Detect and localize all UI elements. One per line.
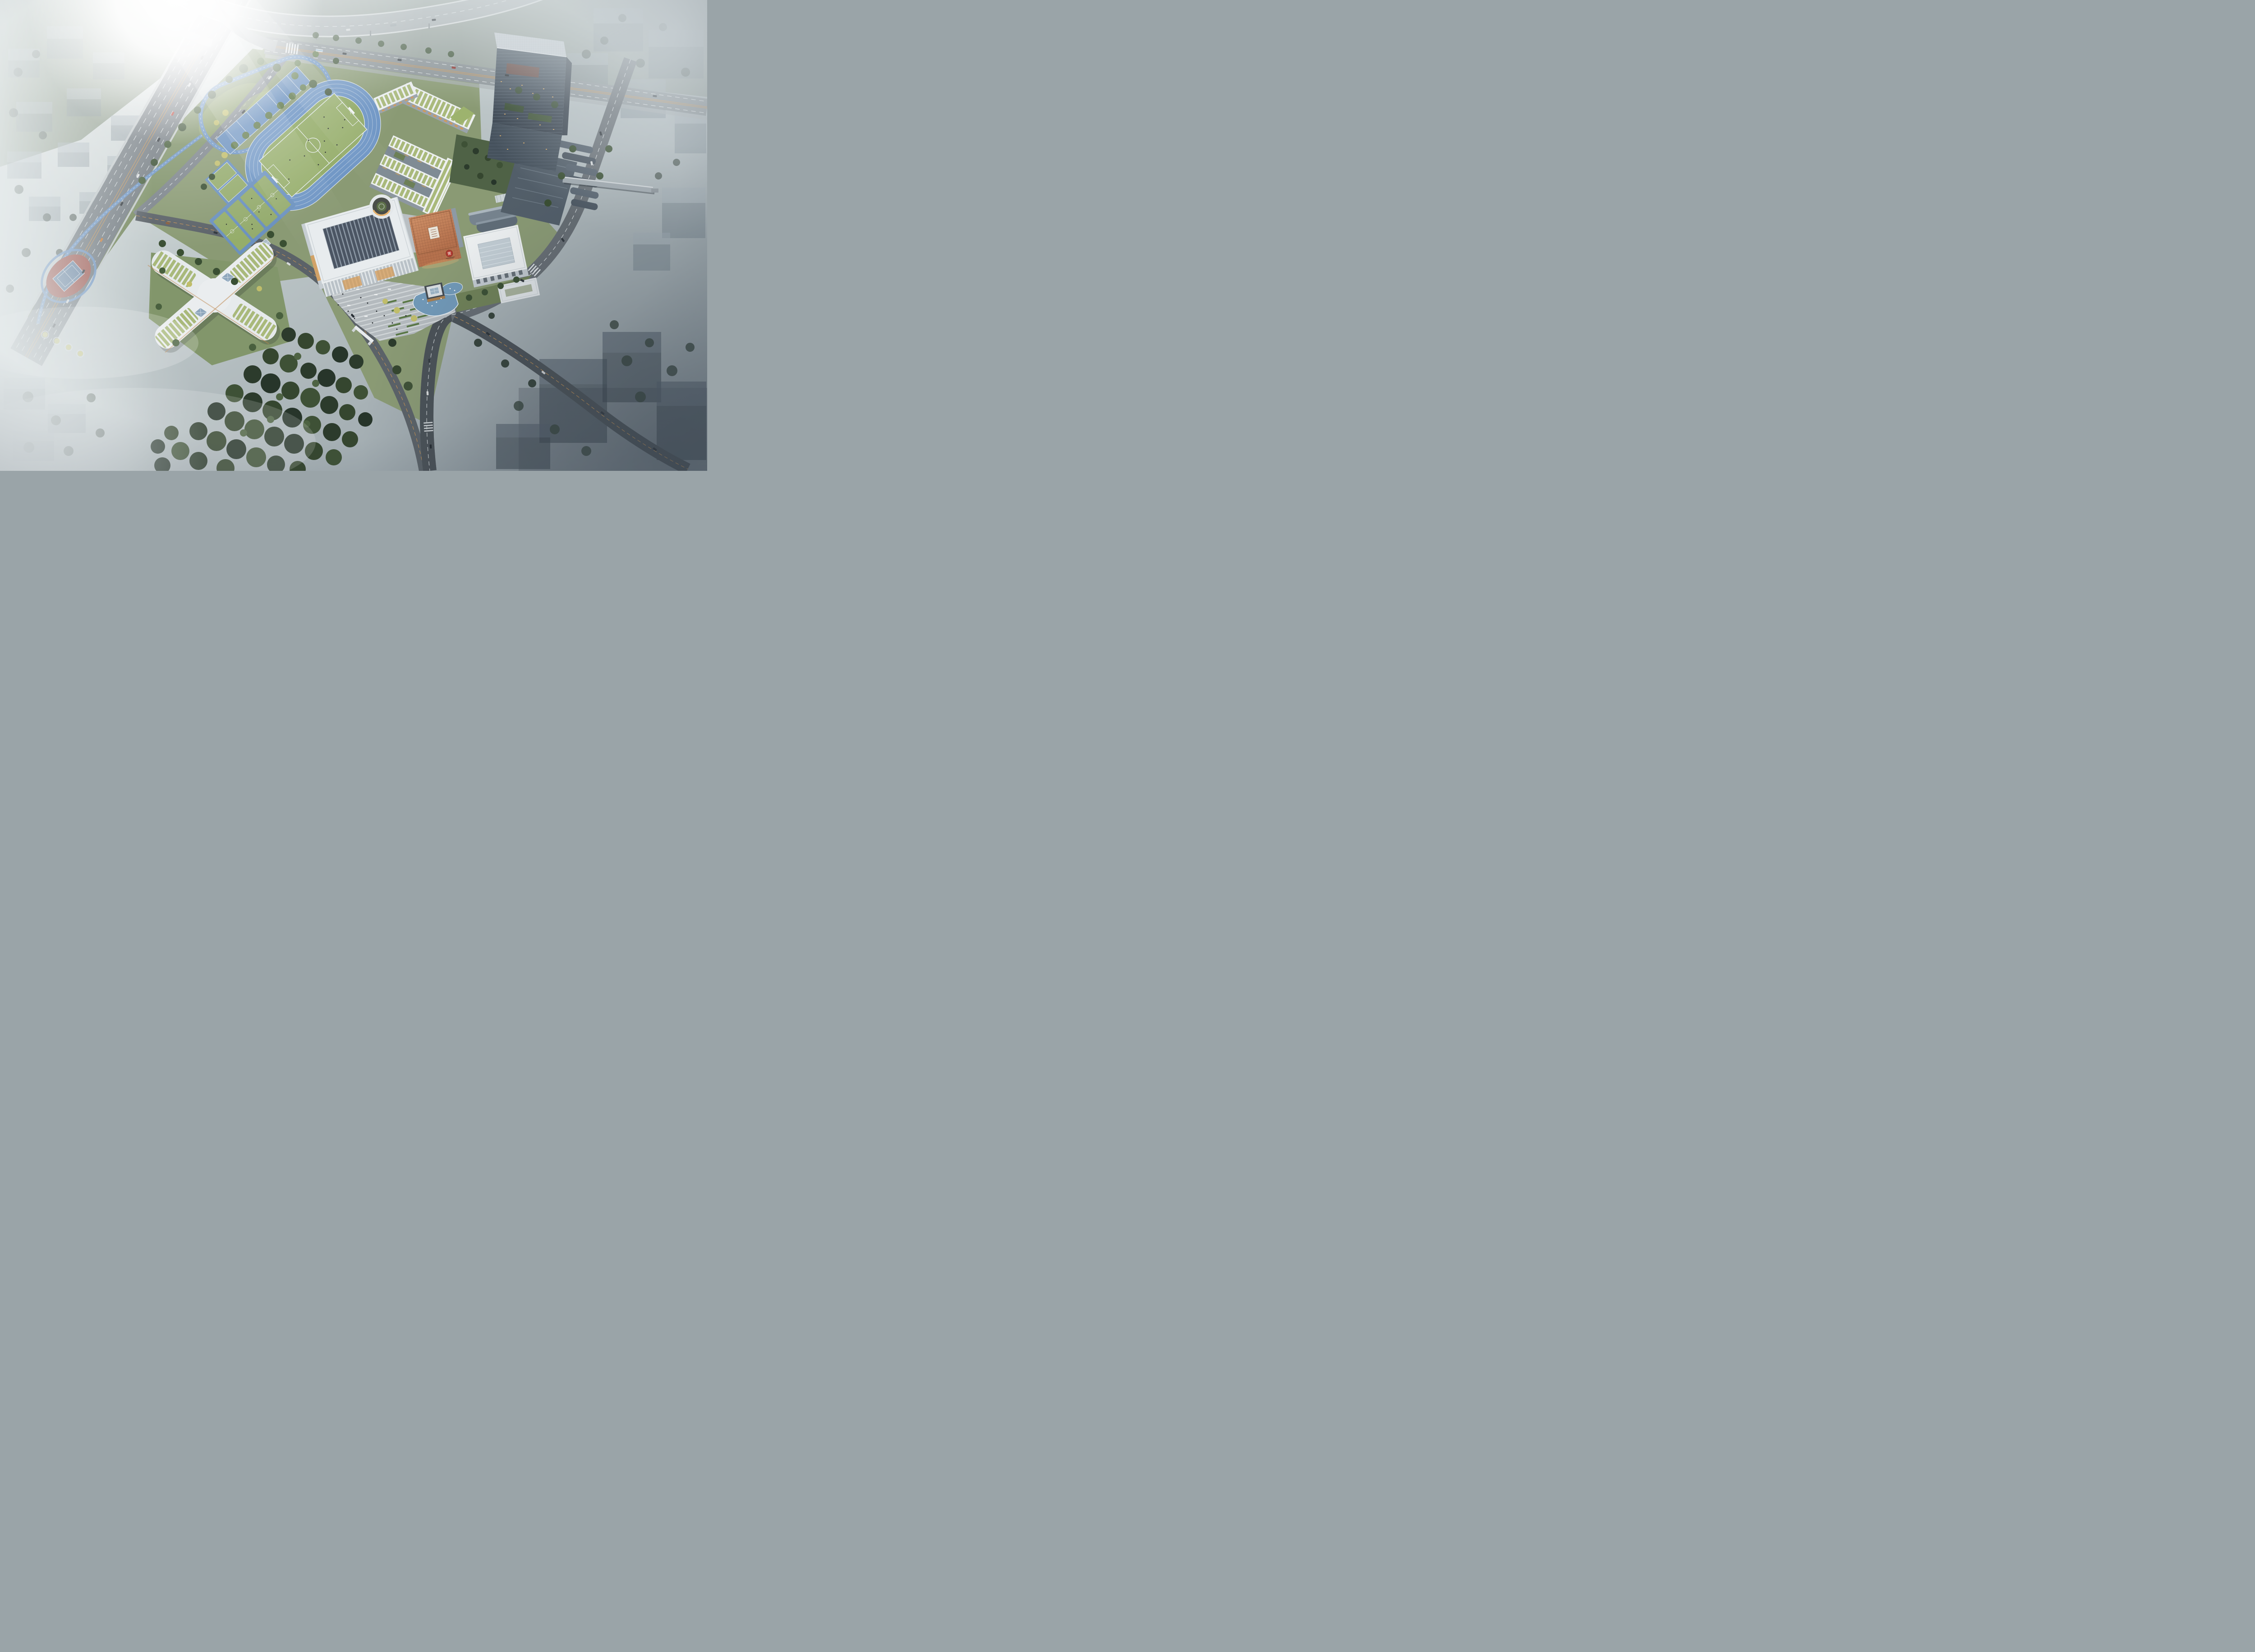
- atmosphere: [0, 0, 707, 471]
- scene-canvas: 實: [0, 0, 707, 471]
- aerial-render: 實: [0, 0, 707, 471]
